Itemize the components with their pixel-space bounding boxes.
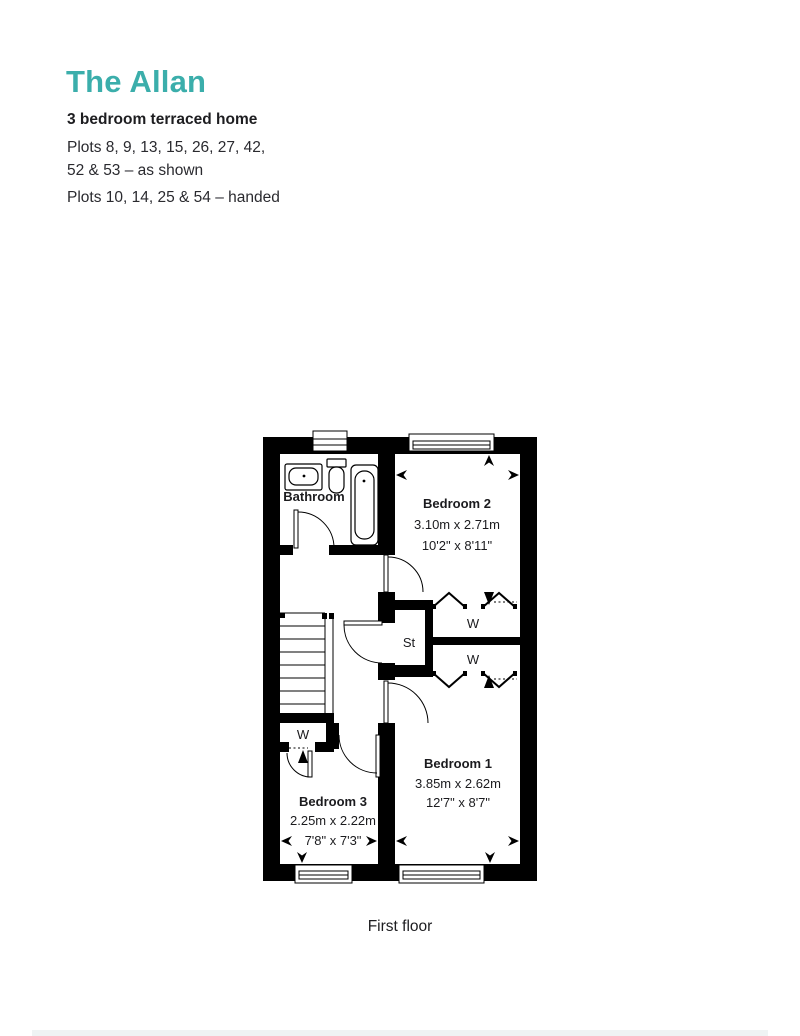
floorplan-diagram: Bathroom Bedroom 2 3.10m x 2.71m 10'2" x… xyxy=(260,429,540,885)
bathtub-icon xyxy=(351,465,378,545)
toilet-icon xyxy=(327,459,346,493)
dim-arrow-left-icon xyxy=(396,470,407,480)
bedroom3-imperial: 7'8" x 7'3" xyxy=(305,833,362,848)
window-symbol-bedroom1 xyxy=(399,865,484,883)
bifold-doors-bedroom2 xyxy=(432,592,517,609)
window-symbol-bedroom3 xyxy=(295,865,352,883)
store-label: St xyxy=(403,635,416,650)
door-store xyxy=(344,621,382,663)
bedroom3-label: Bedroom 3 xyxy=(299,794,367,809)
bedroom2-label: Bedroom 2 xyxy=(423,496,491,511)
plots-handed: Plots 10, 14, 25 & 54 – handed xyxy=(67,187,280,210)
bedroom2-imperial: 10'2" x 8'11" xyxy=(422,538,493,553)
dim-arrow-left-icon xyxy=(281,836,292,846)
door-bedroom2 xyxy=(384,555,423,592)
bedroom1-imperial: 12'7" x 8'7" xyxy=(426,795,490,810)
bedroom3-metric: 2.25m x 2.22m xyxy=(290,813,376,828)
door-wardrobe-bedroom3 xyxy=(287,748,312,777)
bathroom-label: Bathroom xyxy=(283,489,344,504)
swing-arrow-icon xyxy=(298,750,308,763)
brochure-page: { "header": { "title": "The Allan", "sub… xyxy=(0,0,800,1036)
floor-caption: First floor xyxy=(260,918,540,936)
dim-arrow-up-icon xyxy=(484,455,494,466)
staircase xyxy=(280,613,334,713)
door-bathroom xyxy=(294,510,334,548)
window-symbol-bedroom2 xyxy=(409,434,494,451)
wardrobe-label-bedroom1: W xyxy=(467,652,480,667)
plots-as-shown-line1: Plots 8, 9, 13, 15, 26, 27, 42, xyxy=(67,137,265,160)
home-type-subtitle: 3 bedroom terraced home xyxy=(67,111,257,129)
window-symbol-bathroom xyxy=(313,431,347,451)
plots-as-shown-line2: 52 & 53 – as shown xyxy=(67,160,265,183)
sink-icon xyxy=(285,464,322,490)
bedroom1-metric: 3.85m x 2.62m xyxy=(415,776,501,791)
bedroom1-label: Bedroom 1 xyxy=(424,756,492,771)
door-bedroom3 xyxy=(339,735,380,777)
bifold-doors-bedroom1 xyxy=(432,671,517,688)
dim-arrow-right-icon xyxy=(366,836,377,846)
dim-arrow-down-icon xyxy=(485,852,495,863)
dim-arrow-right-icon xyxy=(508,470,519,480)
wardrobe-label-bedroom2: W xyxy=(467,616,480,631)
plots-as-shown: Plots 8, 9, 13, 15, 26, 27, 42, 52 & 53 … xyxy=(67,137,265,182)
page-title: The Allan xyxy=(66,64,206,100)
bedroom2-metric: 3.10m x 2.71m xyxy=(414,517,500,532)
door-bedroom1 xyxy=(384,681,428,723)
dim-arrow-right-icon xyxy=(508,836,519,846)
wardrobe-label-bedroom3: W xyxy=(297,727,310,742)
page-edge-divider xyxy=(32,1030,768,1036)
dim-arrow-left-icon xyxy=(396,836,407,846)
dim-arrow-down-icon xyxy=(297,852,307,863)
